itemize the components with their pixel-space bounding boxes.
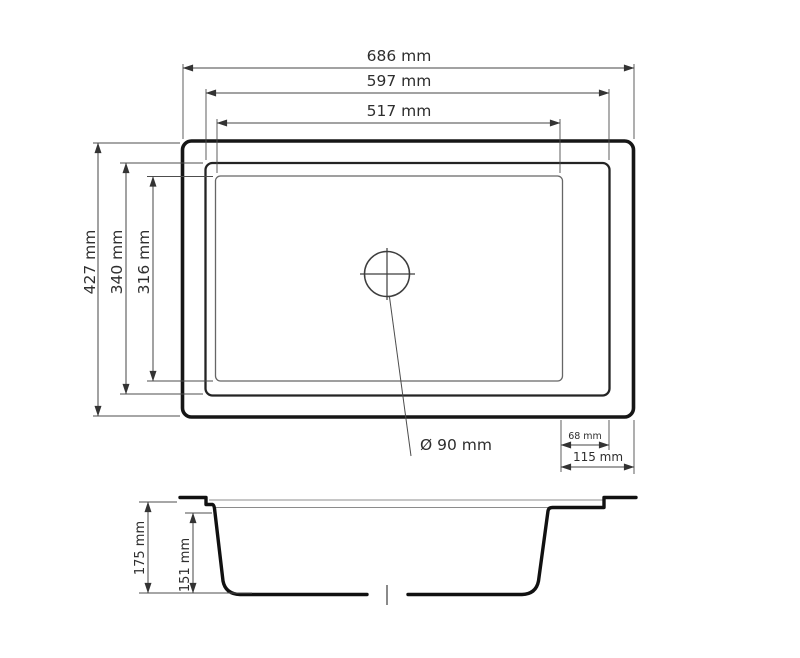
dim-label-overall-depth: 427 mm [81, 230, 99, 295]
dim-bowl-to-rim-edge: 68 mm [561, 420, 609, 472]
sink-technical-drawing: Ø 90 mm 686 mm 597 mm 517 mm [0, 0, 800, 658]
sink-outer-edge [183, 141, 634, 417]
technical-drawing-page: Ø 90 mm 686 mm 597 mm 517 mm [0, 0, 800, 658]
section-profile-right [408, 498, 636, 595]
dim-label-bowl-to-rim-edge: 68 mm [568, 431, 602, 442]
section-view: 175 mm 151 mm [133, 498, 636, 606]
dim-bowl-height: 151 mm [178, 513, 212, 593]
section-profile-left [180, 498, 367, 595]
dim-label-overall-width: 686 mm [367, 47, 432, 65]
dim-label-rim-depth: 340 mm [108, 230, 126, 295]
dim-label-rim-width: 597 mm [367, 72, 432, 90]
dim-overall-depth: 427 mm [81, 143, 180, 416]
dim-label-bowl-width: 517 mm [367, 102, 432, 120]
dim-bowl-to-outer-edge: 115 mm [561, 420, 634, 474]
dim-label-bowl-depth: 316 mm [135, 230, 153, 295]
dim-label-bowl-height: 151 mm [178, 538, 193, 592]
dim-label-bowl-to-outer-edge: 115 mm [573, 450, 623, 464]
top-view: Ø 90 mm 686 mm 597 mm 517 mm [81, 47, 634, 474]
dim-label-drain-diameter: Ø 90 mm [420, 436, 492, 454]
dim-label-total-height: 175 mm [133, 521, 148, 575]
